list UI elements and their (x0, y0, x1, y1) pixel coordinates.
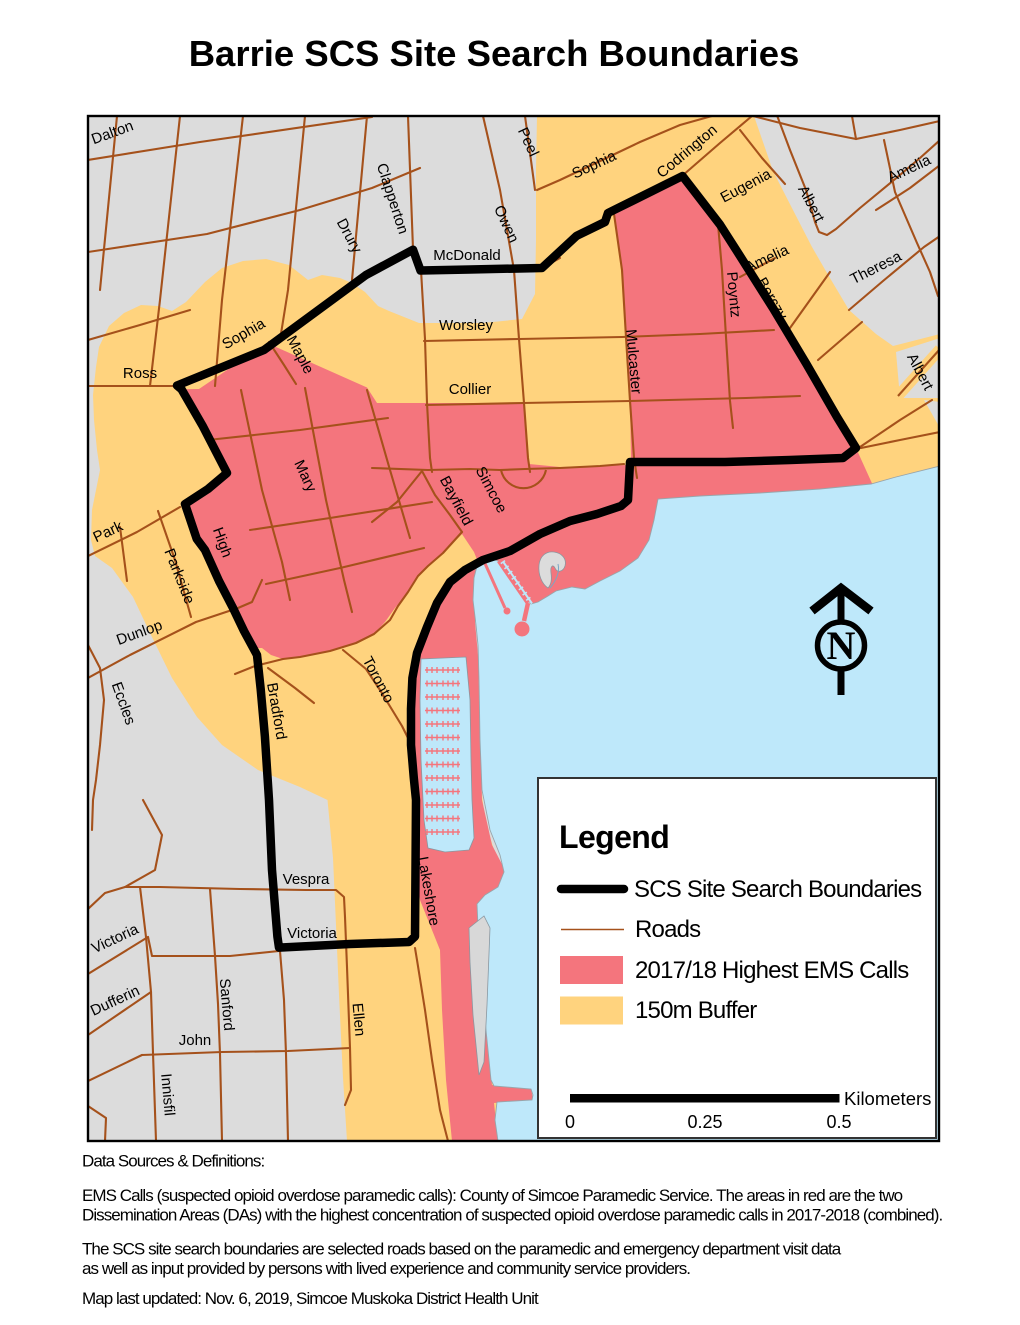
svg-text:Victoria: Victoria (287, 925, 337, 942)
svg-text:Vespra: Vespra (283, 871, 330, 888)
svg-text:Ellen: Ellen (349, 1002, 369, 1037)
svg-text:John: John (179, 1032, 212, 1049)
svg-text:Dissemination Areas (DAs) with: Dissemination Areas (DAs) with the highe… (82, 1206, 942, 1225)
svg-text:The SCS site search boundaries: The SCS site search boundaries are selec… (82, 1240, 842, 1259)
svg-text:Ross: Ross (123, 365, 157, 382)
svg-text:N: N (827, 623, 856, 668)
svg-text:Data Sources & Definitions:: Data Sources & Definitions: (82, 1152, 264, 1171)
svg-text:Worsley: Worsley (439, 317, 493, 334)
svg-text:0: 0 (565, 1112, 575, 1132)
svg-text:150m Buffer: 150m Buffer (635, 997, 757, 1024)
svg-text:0.25: 0.25 (687, 1112, 722, 1132)
svg-text:Collier: Collier (449, 381, 492, 398)
svg-text:EMS Calls (suspected opioid ov: EMS Calls (suspected opioid overdose par… (82, 1186, 903, 1205)
svg-text:Map last updated: Nov. 6, 2019: Map last updated: Nov. 6, 2019, Simcoe M… (82, 1289, 539, 1308)
svg-text:McDonald: McDonald (433, 247, 501, 264)
svg-text:as well as input provided by p: as well as input provided by persons wit… (82, 1259, 690, 1278)
svg-text:SCS Site Search Boundaries: SCS Site Search Boundaries (634, 876, 922, 903)
svg-text:0.5: 0.5 (826, 1112, 851, 1132)
svg-text:Barrie SCS Site Search Boundar: Barrie SCS Site Search Boundaries (189, 33, 800, 74)
svg-text:Legend: Legend (559, 819, 669, 855)
svg-text:2017/18 Highest EMS Calls: 2017/18 Highest EMS Calls (635, 957, 909, 984)
svg-text:Kilometers: Kilometers (844, 1088, 931, 1109)
svg-text:Roads: Roads (635, 916, 701, 943)
